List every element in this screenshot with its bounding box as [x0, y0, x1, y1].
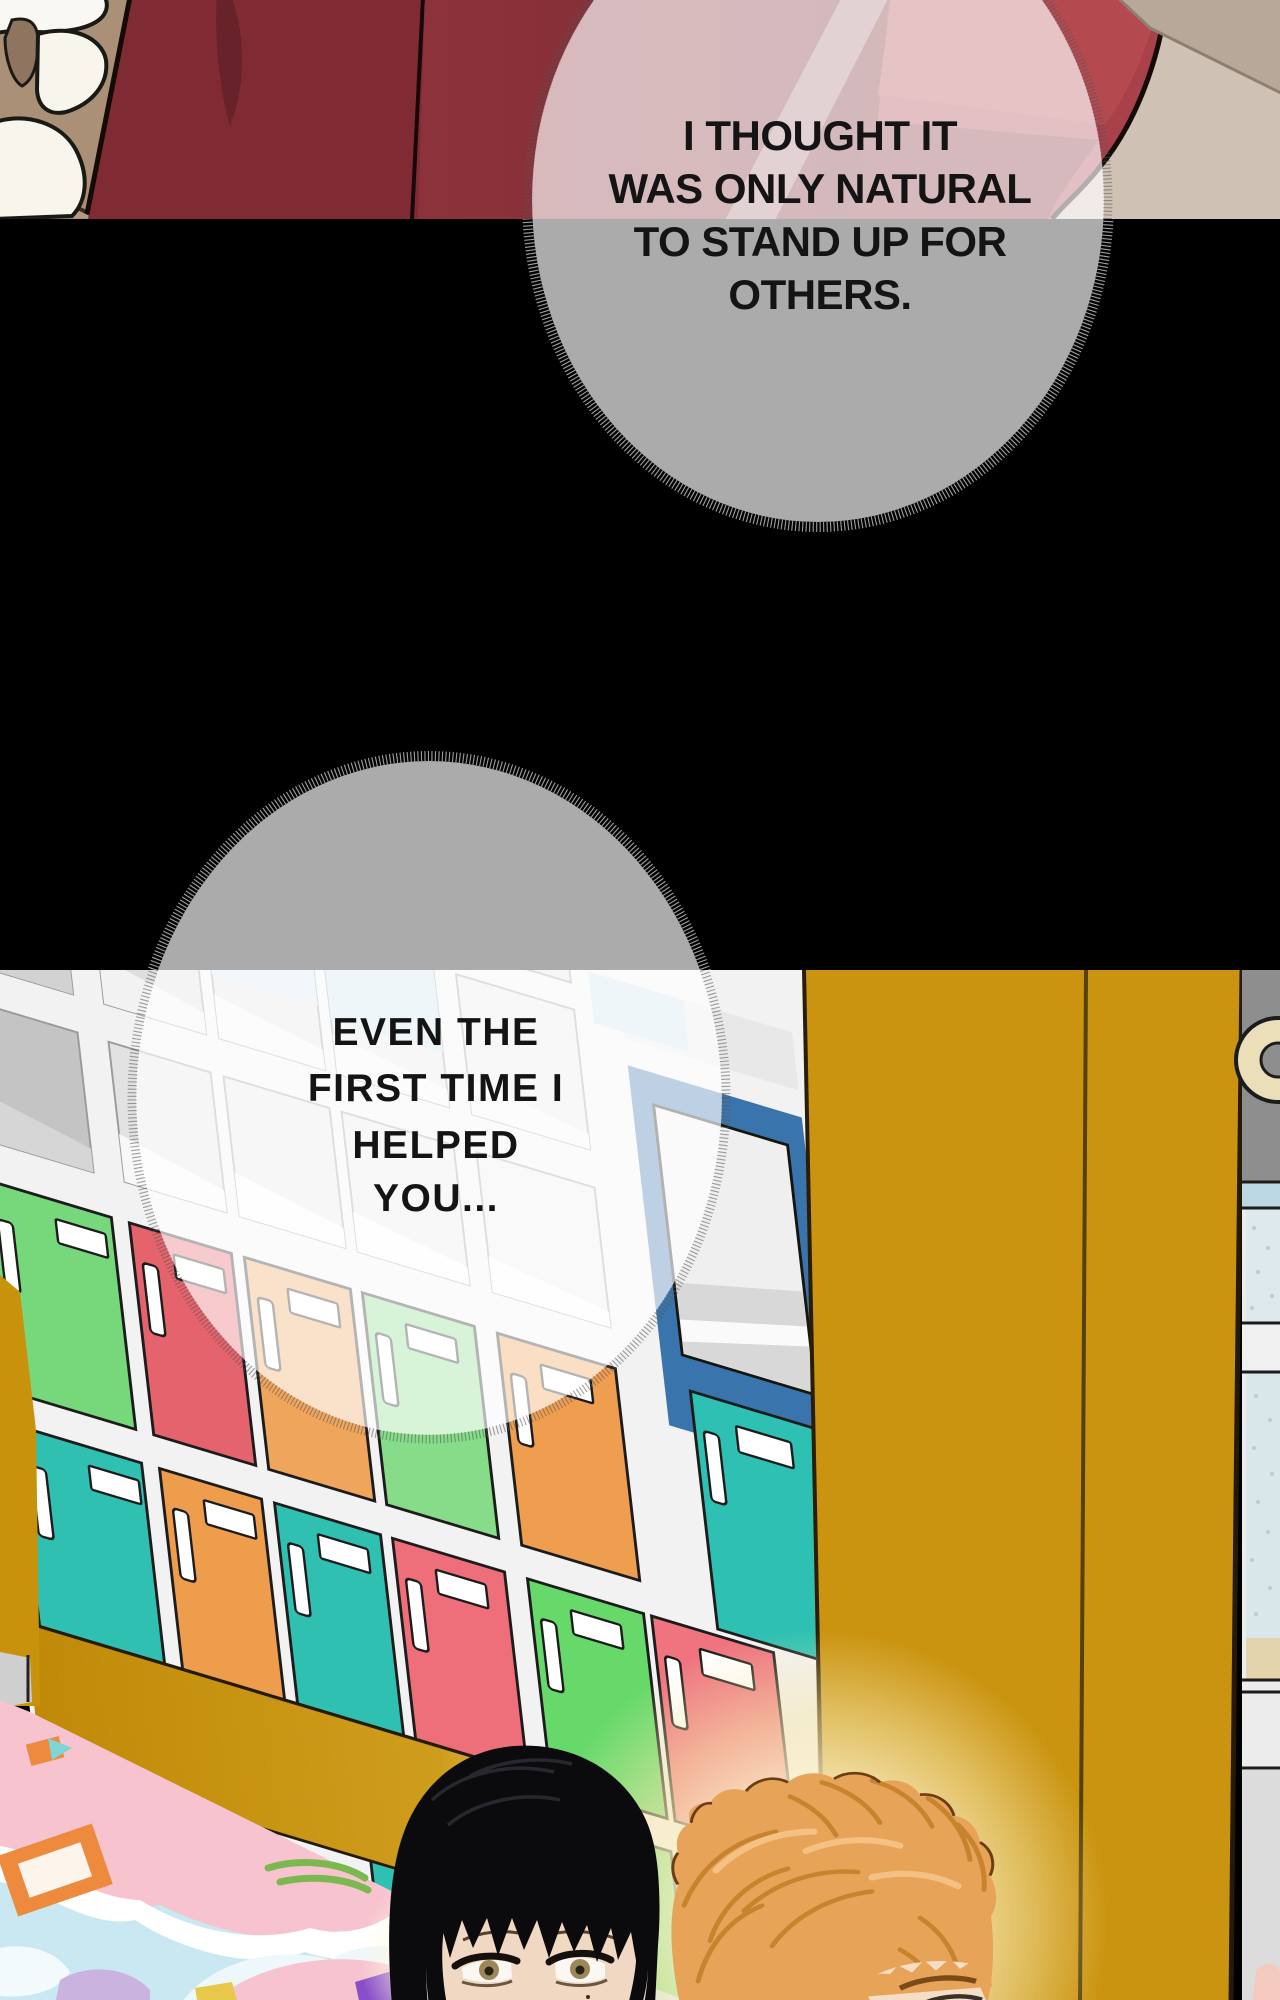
svg-text:OTHERS.: OTHERS.: [728, 271, 911, 318]
svg-text:YOU...: YOU...: [373, 1177, 499, 1220]
svg-text:EVEN THE: EVEN THE: [332, 1011, 539, 1054]
svg-text:TO STAND UP FOR: TO STAND UP FOR: [634, 218, 1007, 265]
svg-text:WAS ONLY NATURAL: WAS ONLY NATURAL: [609, 165, 1032, 212]
svg-text:FIRST TIME I: FIRST TIME I: [308, 1067, 564, 1110]
svg-text:HELPED: HELPED: [352, 1124, 519, 1167]
svg-text:I THOUGHT IT: I THOUGHT IT: [683, 112, 958, 159]
